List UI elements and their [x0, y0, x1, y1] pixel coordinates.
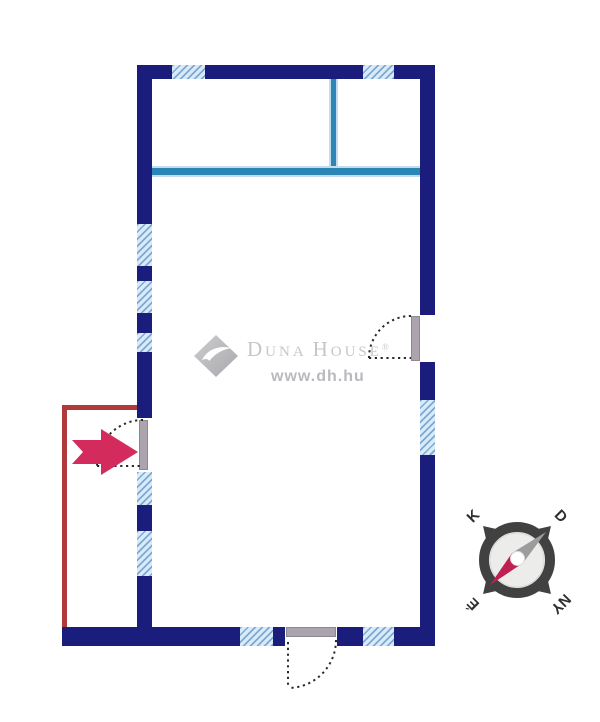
- compass-label-south: D: [551, 507, 571, 527]
- window-left-5: [137, 531, 152, 576]
- exterior-wall-right: [420, 65, 435, 315]
- brand-text: DUNA HOUSE®: [247, 334, 389, 365]
- compass-rose-icon: K D É NY: [447, 490, 587, 630]
- compass-label-east: K: [464, 506, 484, 526]
- window-top-left: [172, 65, 205, 79]
- window-left-2: [137, 281, 152, 313]
- duna-house-watermark: DUNA HOUSE® www.dh.hu: [193, 334, 389, 386]
- window-top-right: [363, 65, 394, 79]
- entrance-arrow-icon: [72, 429, 138, 475]
- compass-needle-north: [490, 553, 523, 585]
- partition-vertical: [329, 79, 338, 166]
- exterior-wall-bottom: [337, 627, 363, 646]
- exterior-wall-bottom: [62, 627, 240, 646]
- annex-wall-left: [62, 405, 67, 627]
- window-bottom-right: [363, 627, 394, 646]
- compass-label-north: É: [464, 594, 483, 613]
- exterior-wall-left: [137, 505, 152, 531]
- door-leaf-entrance: [139, 420, 148, 470]
- window-left-4: [137, 472, 152, 505]
- exterior-wall-left: [137, 65, 152, 224]
- website-url: www.dh.hu: [247, 368, 389, 386]
- door-leaf-bottom: [286, 627, 336, 637]
- partition-horizontal: [152, 166, 420, 177]
- window-left-3: [137, 333, 152, 352]
- exterior-wall-left: [137, 352, 152, 418]
- exterior-wall-top: [205, 65, 363, 79]
- exterior-wall-left: [137, 266, 152, 281]
- exterior-wall-right: [420, 362, 435, 400]
- exterior-wall-left: [137, 313, 152, 333]
- door-leaf-right: [411, 316, 420, 361]
- exterior-wall-left: [137, 576, 152, 627]
- registered-mark: ®: [382, 342, 389, 352]
- window-left-1: [137, 224, 152, 266]
- door-swing-arc-entrance: [97, 420, 143, 466]
- compass-needle-south: [512, 532, 546, 563]
- window-right: [420, 400, 435, 455]
- duna-house-logo-icon: [193, 334, 239, 378]
- exterior-wall-right: [420, 455, 435, 627]
- exterior-wall-bottom: [273, 627, 285, 646]
- annex-wall-top: [62, 405, 137, 410]
- door-swing-arc-bottom: [288, 640, 336, 688]
- exterior-wall-bottom: [394, 627, 435, 646]
- compass-label-west: NY: [547, 590, 574, 617]
- floor-plan: DUNA HOUSE® www.dh.hu K D É NY: [0, 0, 600, 722]
- window-bottom-left: [240, 627, 273, 646]
